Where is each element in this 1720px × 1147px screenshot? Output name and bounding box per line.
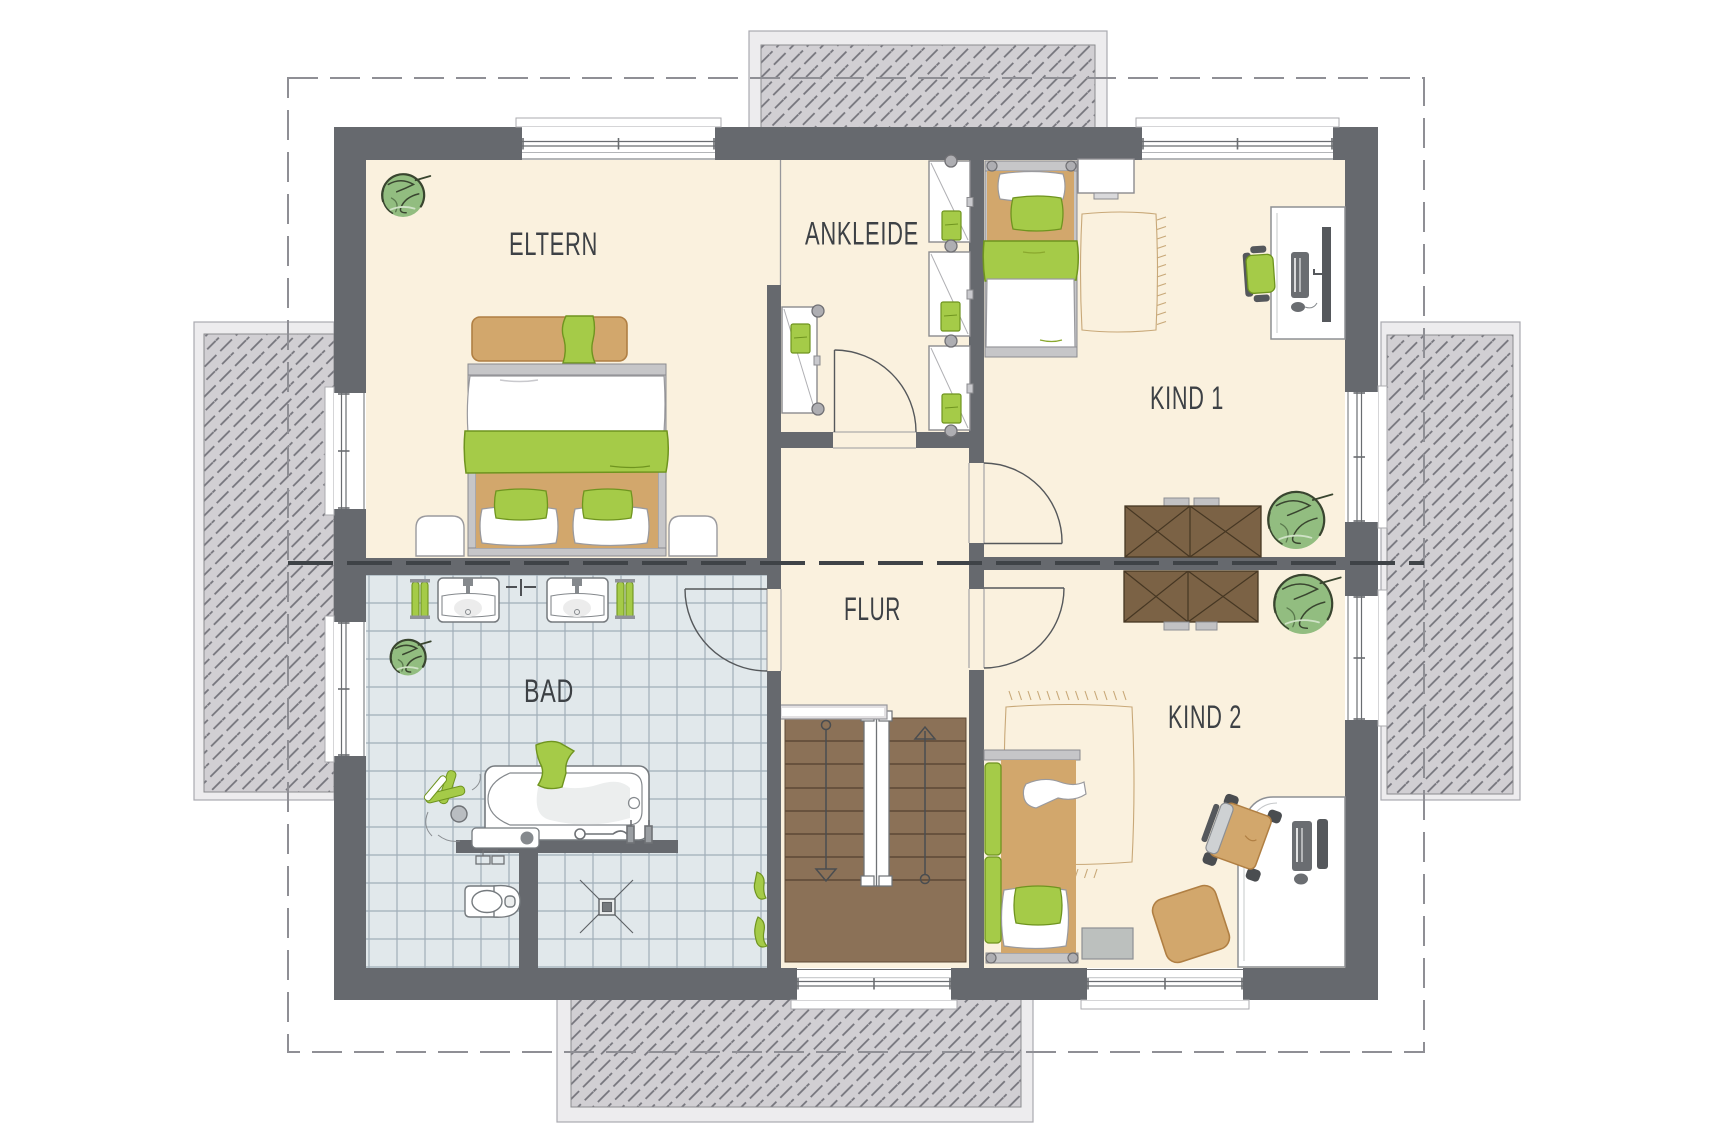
svg-text:KIND 1: KIND 1 [1150,380,1224,416]
svg-text:KIND 2: KIND 2 [1168,699,1242,735]
svg-text:BAD: BAD [524,673,574,709]
svg-text:ANKLEIDE: ANKLEIDE [805,216,919,252]
svg-text:ELTERN: ELTERN [509,226,598,262]
svg-text:FLUR: FLUR [844,591,901,627]
